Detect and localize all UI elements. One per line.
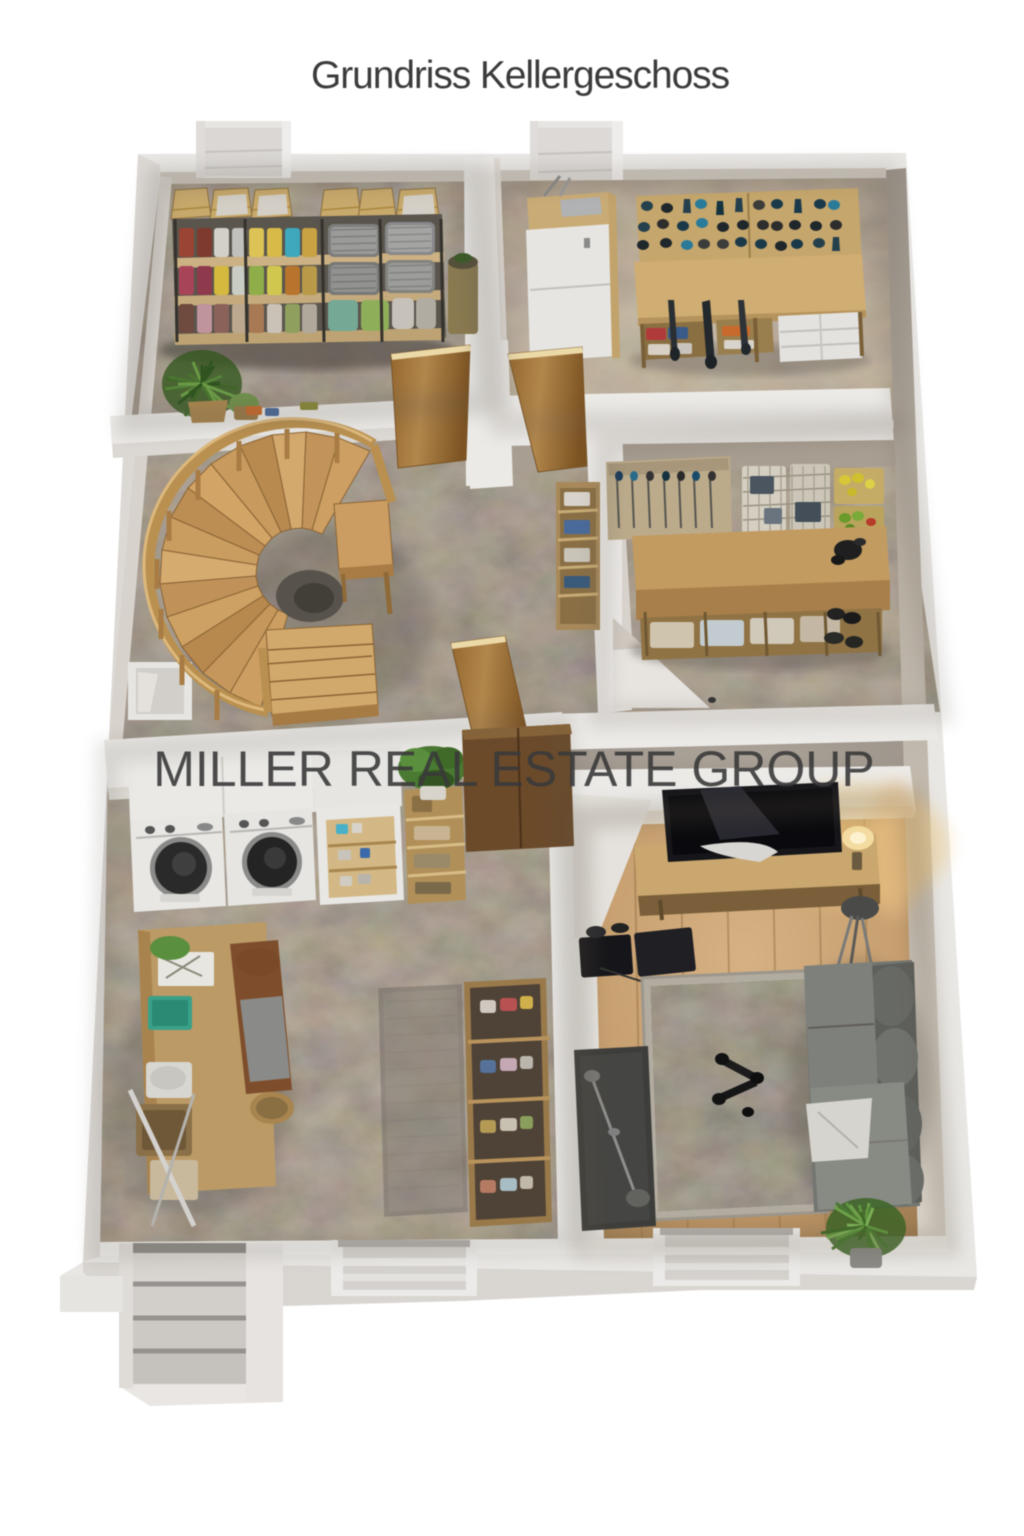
svg-text:MILLER REAL ESTATE GROUP: MILLER REAL ESTATE GROUP [153,741,874,797]
svg-text:Grundriss Kellergeschoss: Grundriss Kellergeschoss [311,54,730,97]
